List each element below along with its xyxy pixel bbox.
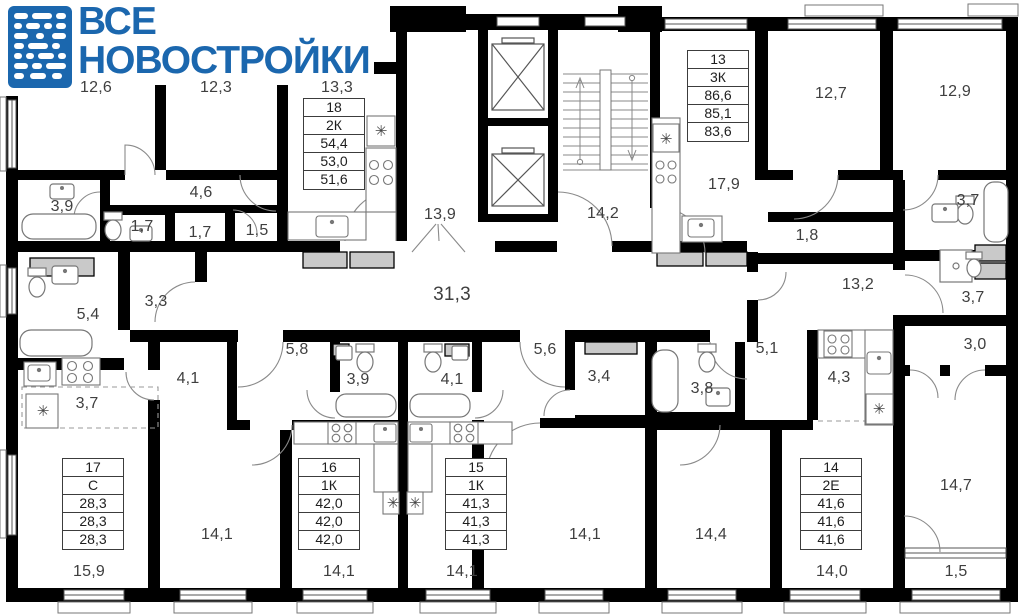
- apartment-area: 53,0: [303, 152, 365, 172]
- apartment-area: 28,3: [62, 512, 124, 532]
- room-area-label: 1,5: [945, 563, 968, 581]
- room-area-label: 14,4: [695, 526, 727, 544]
- stove-icon: [62, 358, 100, 385]
- room-area-label: 12,9: [939, 83, 971, 101]
- room-area-label: 5,6: [534, 341, 557, 359]
- apartment-info-box[interactable]: 17С28,328,328,3: [62, 458, 124, 550]
- room-area-label: 12,7: [815, 85, 847, 103]
- logo-text: ВСЕ НОВОСТРОЙКИ: [78, 2, 370, 80]
- room-area-label: 3,9: [51, 198, 74, 216]
- sink-icon: [24, 362, 56, 386]
- washer-asterisk-icon: ✳: [660, 130, 673, 148]
- room-area-label: 4,6: [190, 184, 213, 202]
- stove-icon: [450, 422, 478, 444]
- room-area-label: 3,7: [76, 395, 99, 413]
- elevator-icon: [492, 38, 544, 110]
- apartment-number: 13: [687, 50, 749, 70]
- apartment-type: 2Е: [800, 476, 862, 496]
- apartment-area: 41,3: [445, 530, 507, 550]
- washer-asterisk-icon: ✳: [387, 494, 400, 512]
- room-area-label: 3,9: [347, 371, 370, 389]
- stove-icon: [824, 331, 852, 357]
- room-area-label: 4,1: [441, 371, 464, 389]
- toilet-icon: [104, 212, 122, 240]
- logo-building-icon: [6, 4, 80, 96]
- bathtub-icon: [410, 394, 470, 417]
- sink-icon: [50, 184, 74, 199]
- room-area-label: 15,9: [73, 563, 105, 581]
- washer-asterisk-icon: ✳: [37, 402, 50, 420]
- apartment-area: 28,3: [62, 530, 124, 550]
- apartment-number: 14: [800, 458, 862, 478]
- apartment-info-box[interactable]: 133К86,685,183,6: [687, 50, 749, 142]
- apartment-number: 18: [303, 98, 365, 118]
- sink-icon: [316, 216, 348, 237]
- toilet-icon: [966, 252, 982, 277]
- apartment-area: 54,4: [303, 134, 365, 154]
- bathtub-icon: [984, 182, 1008, 242]
- apartment-type: С: [62, 476, 124, 496]
- room-area-label: 3,7: [957, 192, 980, 210]
- apartment-info-box[interactable]: 142Е41,641,641,6: [800, 458, 862, 550]
- apartment-area: 86,6: [687, 86, 749, 106]
- sink-icon: [932, 204, 958, 222]
- room-area-label: 4,3: [828, 369, 851, 387]
- room-area-label: 3,3: [145, 293, 168, 311]
- stove-icon: [328, 422, 356, 444]
- room-area-label: 4,1: [177, 370, 200, 388]
- apartment-area: 42,0: [298, 494, 360, 514]
- apartment-type: 1К: [298, 476, 360, 496]
- apartment-info-box[interactable]: 182К54,453,051,6: [303, 98, 365, 190]
- apartment-area: 28,3: [62, 494, 124, 514]
- bathtub-icon: [336, 394, 396, 417]
- room-area-label: 14,1: [323, 563, 355, 581]
- sink-icon: [336, 346, 352, 360]
- bathtub-icon: [20, 330, 92, 356]
- logo-line2: НОВОСТРОЙКИ: [78, 41, 370, 80]
- apartment-area: 42,0: [298, 530, 360, 550]
- toilet-icon: [356, 344, 374, 372]
- toilet-icon: [698, 344, 716, 372]
- apartment-area: 41,3: [445, 512, 507, 532]
- toilet-icon: [28, 268, 46, 297]
- sink-icon: [52, 266, 78, 284]
- room-area-label: 14,7: [940, 477, 972, 495]
- apartment-area: 41,3: [445, 494, 507, 514]
- apartment-area: 83,6: [687, 122, 749, 142]
- sink-icon: [452, 346, 468, 360]
- sink-icon: [374, 424, 396, 442]
- apartment-area: 41,6: [800, 530, 862, 550]
- logo-line1: ВСЕ: [78, 2, 370, 41]
- apartment-number: 17: [62, 458, 124, 478]
- apartment-number: 16: [298, 458, 360, 478]
- toilet-icon: [424, 344, 442, 372]
- bathtub-icon: [22, 214, 96, 239]
- apartment-area: 51,6: [303, 170, 365, 190]
- room-area-label: 14,2: [587, 205, 619, 223]
- room-area-label: 5,8: [286, 341, 309, 359]
- apartment-area: 85,1: [687, 104, 749, 124]
- room-area-label: 13,2: [842, 276, 874, 294]
- room-area-label: 14,0: [816, 563, 848, 581]
- sink-icon: [410, 424, 432, 442]
- apartment-area: 41,6: [800, 512, 862, 532]
- room-area-label: 17,9: [708, 176, 740, 194]
- washer-asterisk-icon: ✳: [873, 400, 886, 418]
- floor-plan-page: 12,612,313,312,712,93,94,61,71,71,513,91…: [0, 0, 1024, 616]
- stairs-icon: [563, 70, 648, 170]
- sink-icon: [867, 352, 891, 374]
- room-area-label: 14,1: [569, 526, 601, 544]
- washer-asterisk-icon: ✳: [375, 122, 388, 140]
- bathtub-icon: [652, 350, 678, 412]
- room-area-label: 1,7: [131, 218, 154, 236]
- apartment-type: 1К: [445, 476, 507, 496]
- apartment-number: 15: [445, 458, 507, 478]
- room-area-label: 13,9: [424, 206, 456, 224]
- apartment-type: 2К: [303, 116, 365, 136]
- room-area-label: 1,7: [189, 224, 212, 242]
- apartment-area: 41,6: [800, 494, 862, 514]
- room-area-label: 14,1: [201, 526, 233, 544]
- room-area-label: 1,8: [796, 227, 819, 245]
- washer-asterisk-icon: ✳: [409, 494, 422, 512]
- room-area-label: 5,1: [756, 340, 779, 358]
- room-area-label: 31,3: [433, 284, 471, 306]
- room-area-label: 3,7: [962, 289, 985, 307]
- apartment-type: 3К: [687, 68, 749, 88]
- room-area-label: 3,4: [588, 368, 611, 386]
- elevator-icon: [492, 148, 544, 206]
- room-area-label: 5,4: [77, 306, 100, 324]
- room-area-label: 1,5: [246, 222, 269, 240]
- sink-icon: [682, 216, 722, 242]
- apartment-info-box[interactable]: 151К41,341,341,3: [445, 458, 507, 550]
- room-area-label: 3,8: [691, 380, 714, 398]
- apartment-info-box[interactable]: 161К42,042,042,0: [298, 458, 360, 550]
- room-area-label: 3,0: [964, 336, 987, 354]
- apartment-area: 42,0: [298, 512, 360, 532]
- room-area-label: 14,1: [446, 563, 478, 581]
